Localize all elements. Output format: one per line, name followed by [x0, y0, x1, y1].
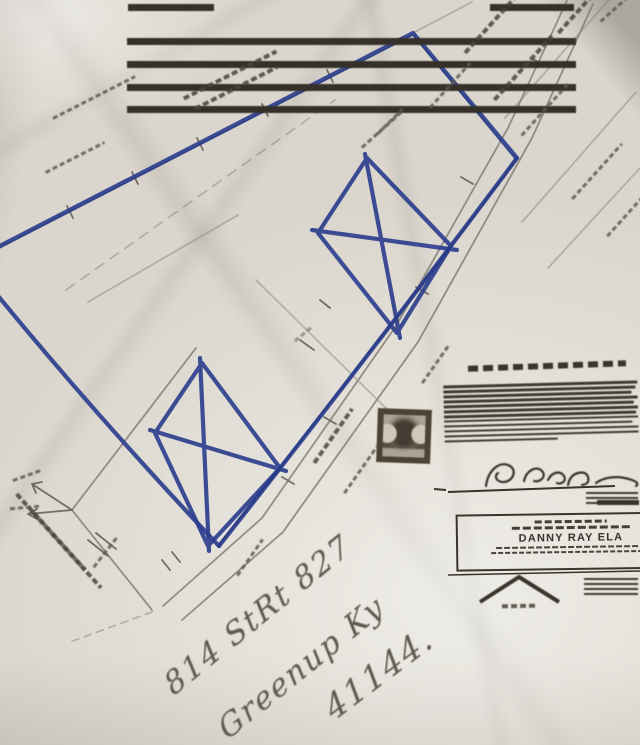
certification-text-block	[443, 380, 638, 445]
logo-caption-smudge	[502, 604, 536, 608]
lower-crossed-lot	[150, 358, 286, 551]
firm-address-line	[584, 588, 638, 590]
title-line-smudge	[491, 549, 640, 554]
title-line-smudge	[496, 545, 640, 550]
survey-tick-marks	[67, 59, 545, 570]
side-text-line	[586, 497, 638, 499]
scanned-survey-plat-photo: DANNY RAY ELA 814 StRt 827 Greenup Ky 41…	[0, 0, 640, 745]
dashed-drainage-line	[66, 100, 335, 290]
surveyor-seal-stamp	[376, 408, 432, 464]
chevron-icon	[480, 577, 559, 602]
firm-address-line	[584, 593, 638, 595]
side-text-line	[586, 492, 638, 494]
signature-scribble	[434, 464, 637, 492]
title-line-smudge	[535, 519, 607, 523]
cert-text-line	[445, 437, 558, 443]
signature-stroke	[486, 464, 637, 486]
title-line-smudge	[512, 525, 630, 530]
firm-address-block	[584, 578, 638, 598]
road-end-dashes	[70, 612, 152, 642]
title-box-underline	[448, 571, 640, 575]
firm-address-line	[584, 578, 638, 580]
redaction-bar	[127, 61, 576, 68]
redaction-bar	[128, 4, 214, 11]
title-block: DANNY RAY ELA	[456, 511, 640, 571]
firm-address-line	[584, 583, 638, 585]
stamp-mark	[597, 500, 639, 505]
owner-name: DANNY RAY ELA	[519, 531, 624, 544]
interior-line-b	[256, 280, 398, 420]
redaction-bar	[127, 38, 576, 45]
